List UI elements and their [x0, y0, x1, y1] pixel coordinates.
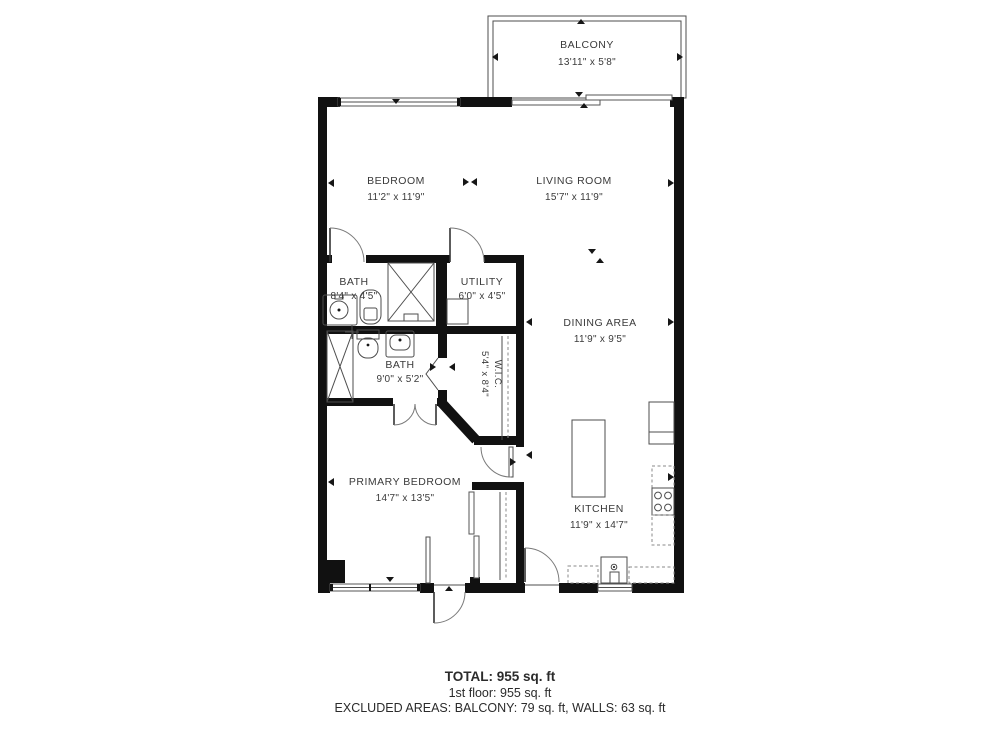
- fridge: [649, 402, 674, 444]
- area-summary: TOTAL: 955 sq. ft 1st floor: 955 sq. ft …: [335, 669, 666, 715]
- bath-top-door: [330, 228, 364, 262]
- bath-primary-label: BATH: [385, 359, 414, 371]
- wic-label: W.I.C.: [492, 360, 503, 388]
- bath-primary-dims: 9'0" x 5'2": [376, 374, 423, 385]
- main-entry-door: [434, 592, 465, 623]
- wic-dims: 5'4" x 8'4": [479, 351, 490, 397]
- balcony-sliding-door: [512, 95, 672, 105]
- balcony-label: BALCONY: [560, 39, 614, 51]
- summary-excluded: EXCLUDED AREAS: BALCONY: 79 sq. ft, WALL…: [335, 701, 666, 715]
- summary-floor: 1st floor: 955 sq. ft: [449, 686, 552, 700]
- kitchen-window: [598, 584, 632, 591]
- shower-top: [388, 263, 434, 321]
- dining-label: DINING AREA: [563, 317, 636, 329]
- living-room-label: LIVING ROOM: [536, 175, 612, 187]
- diagonal-wall: [441, 402, 476, 440]
- utility-appliance: [447, 299, 468, 324]
- bath-top-dims: 8'4" x 4'5": [330, 291, 377, 302]
- room-labels: BALCONY 13'11" x 5'8" BEDROOM 11'2" x 11…: [330, 39, 636, 531]
- floor-plan-page: BALCONY 13'11" x 5'8" BEDROOM 11'2" x 11…: [0, 0, 1000, 750]
- bath-top-label: BATH: [339, 276, 368, 288]
- toilet-primary: [357, 330, 379, 358]
- vanity-sink-primary: [386, 331, 414, 357]
- utility-door: [450, 228, 484, 262]
- primary-bedroom-window: [330, 584, 420, 591]
- wic-bifold-door: [426, 358, 438, 390]
- primary-bedroom-dims: 14'7" x 13'5": [376, 493, 435, 504]
- primary-bedroom-label: PRIMARY BEDROOM: [349, 476, 461, 488]
- utility-dims: 6'0" x 4'5": [458, 291, 505, 302]
- dining-dims: 11'9" x 9'5": [574, 334, 626, 345]
- kitchen-island: [572, 420, 605, 497]
- wall-stub: [426, 537, 430, 583]
- summary-total: TOTAL: 955 sq. ft: [445, 669, 556, 684]
- shower-primary: [327, 331, 353, 402]
- kitchen-label: KITCHEN: [574, 503, 624, 515]
- living-room-dims: 15'7" x 11'9": [545, 192, 603, 203]
- balcony-dims: 13'11" x 5'8": [558, 57, 616, 68]
- bedroom-label: BEDROOM: [367, 175, 425, 187]
- utility-label: UTILITY: [461, 276, 504, 288]
- fixtures: [323, 263, 674, 583]
- kitchen-entry-door: [525, 548, 559, 582]
- primary-bath-double-door: [394, 404, 436, 425]
- bedroom-dims: 11'2" x 11'9": [367, 192, 424, 203]
- closet-sliding-doors: [469, 492, 506, 580]
- kitchen-sink: [601, 557, 627, 583]
- exterior-walls: [318, 97, 684, 593]
- floor-plan: BALCONY 13'11" x 5'8" BEDROOM 11'2" x 11…: [0, 0, 1000, 750]
- kitchen-dims: 11'9" x 14'7": [570, 520, 628, 531]
- suite-hall-door: [481, 447, 513, 477]
